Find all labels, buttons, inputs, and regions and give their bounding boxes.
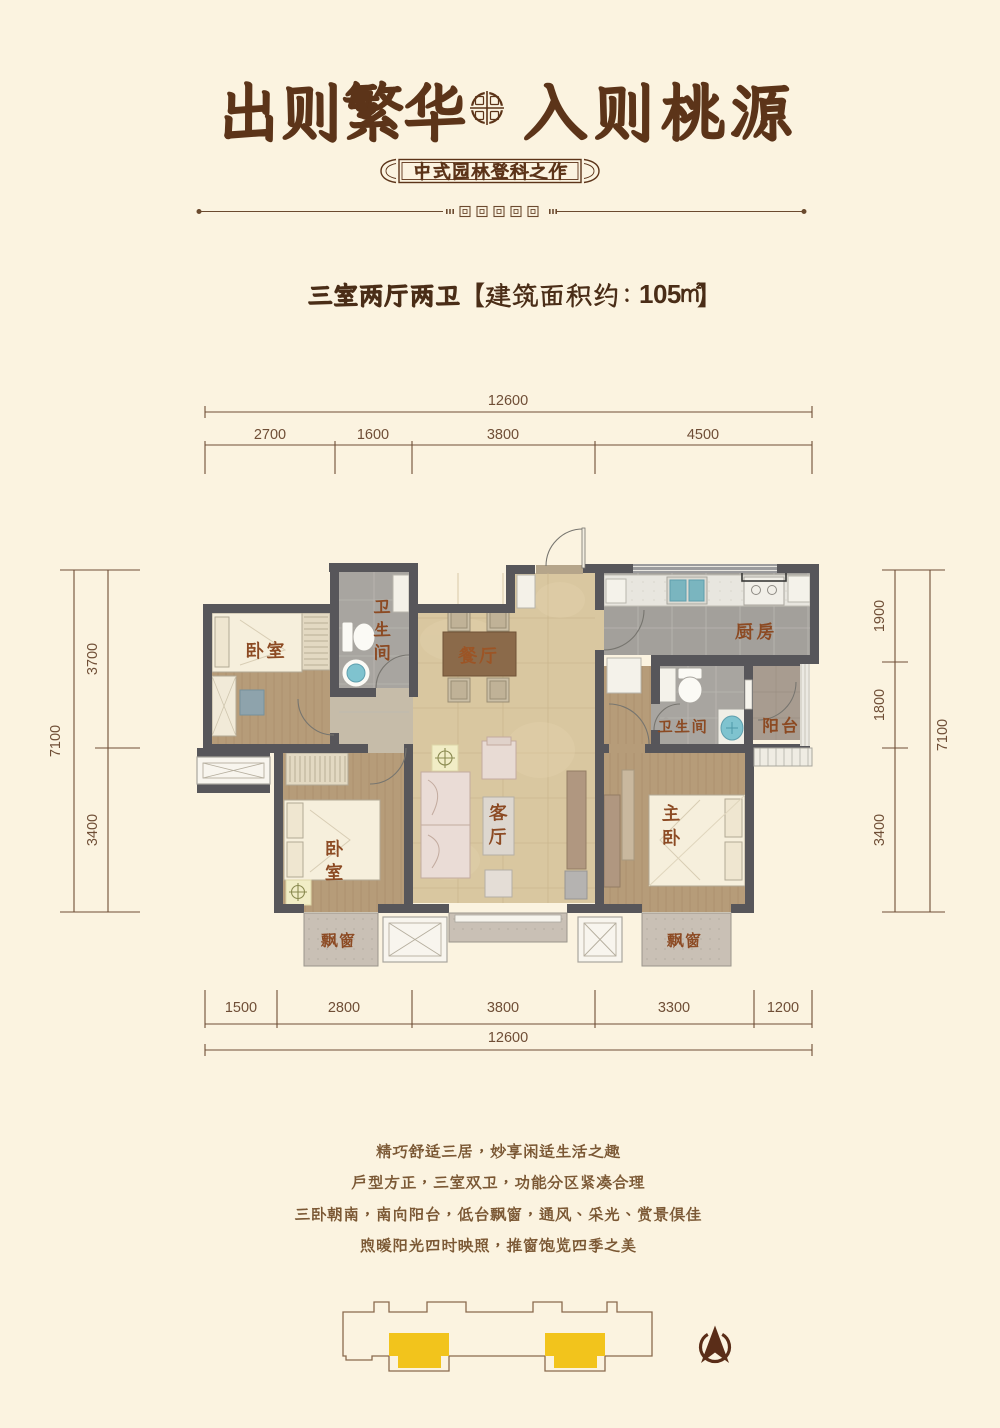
svg-text:2700: 2700 [254, 427, 286, 443]
svg-text:1200: 1200 [767, 1000, 799, 1016]
svg-text:4500: 4500 [687, 427, 719, 443]
svg-text:12600: 12600 [488, 393, 528, 409]
svg-text:3800: 3800 [487, 427, 519, 443]
svg-text:3300: 3300 [658, 1000, 690, 1016]
svg-text:3400: 3400 [872, 814, 888, 846]
svg-text:2800: 2800 [328, 1000, 360, 1016]
svg-text:1600: 1600 [357, 427, 389, 443]
svg-text:7100: 7100 [48, 725, 64, 757]
svg-text:7100: 7100 [935, 719, 951, 751]
svg-text:1900: 1900 [872, 600, 888, 632]
svg-text:1500: 1500 [225, 1000, 257, 1016]
svg-text:1800: 1800 [872, 689, 888, 721]
svg-text:3400: 3400 [85, 814, 101, 846]
svg-text:12600: 12600 [488, 1030, 528, 1046]
svg-text:3800: 3800 [487, 1000, 519, 1016]
svg-text:3700: 3700 [85, 643, 101, 675]
svg-text:105: 105 [639, 279, 681, 309]
